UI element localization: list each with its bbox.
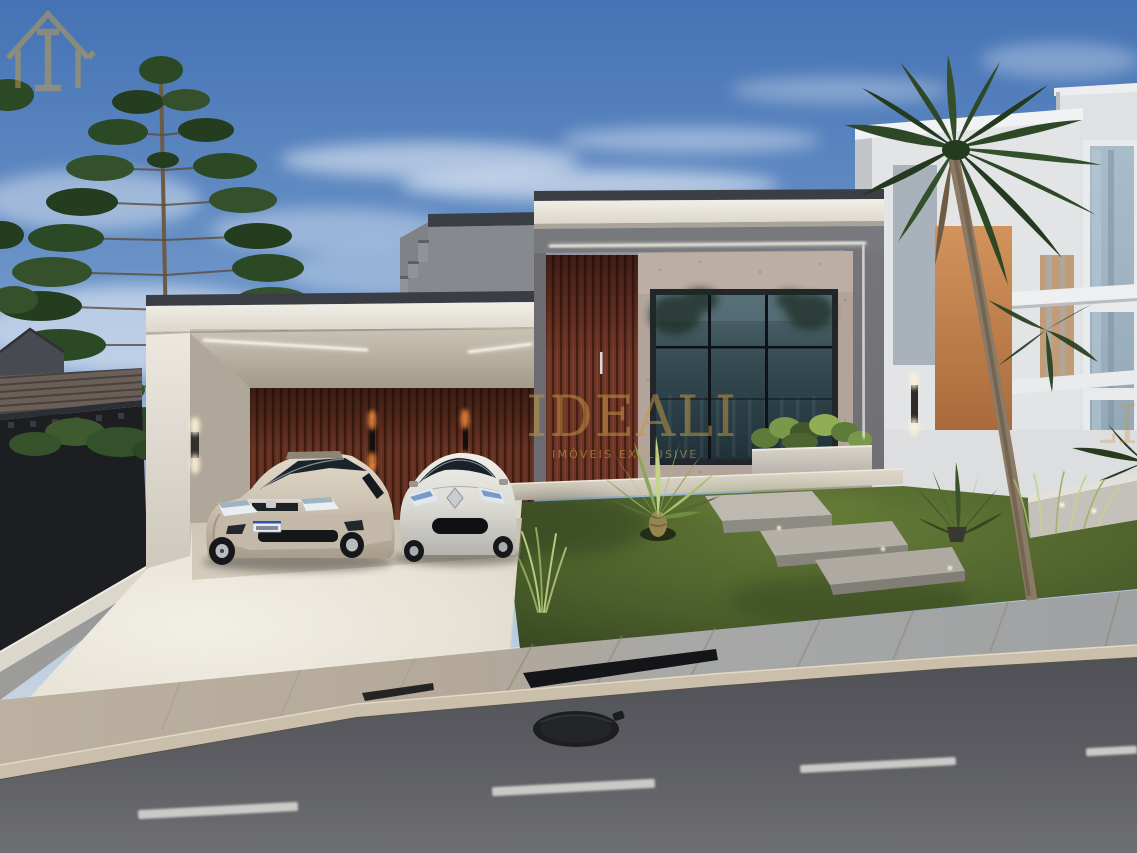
roof-fascia — [534, 199, 884, 224]
entry-wood-slat-panel — [546, 255, 638, 483]
license-plate — [253, 521, 281, 532]
main-house-facade — [534, 189, 884, 494]
architectural-render-scene: IDEALI IMÓVEIS EXCLUSIVE IDEALI — [0, 0, 1137, 853]
door-handle — [600, 352, 603, 374]
wall-sconce — [190, 417, 200, 474]
carport-fascia — [146, 302, 534, 332]
scene-canvas — [0, 0, 1137, 853]
